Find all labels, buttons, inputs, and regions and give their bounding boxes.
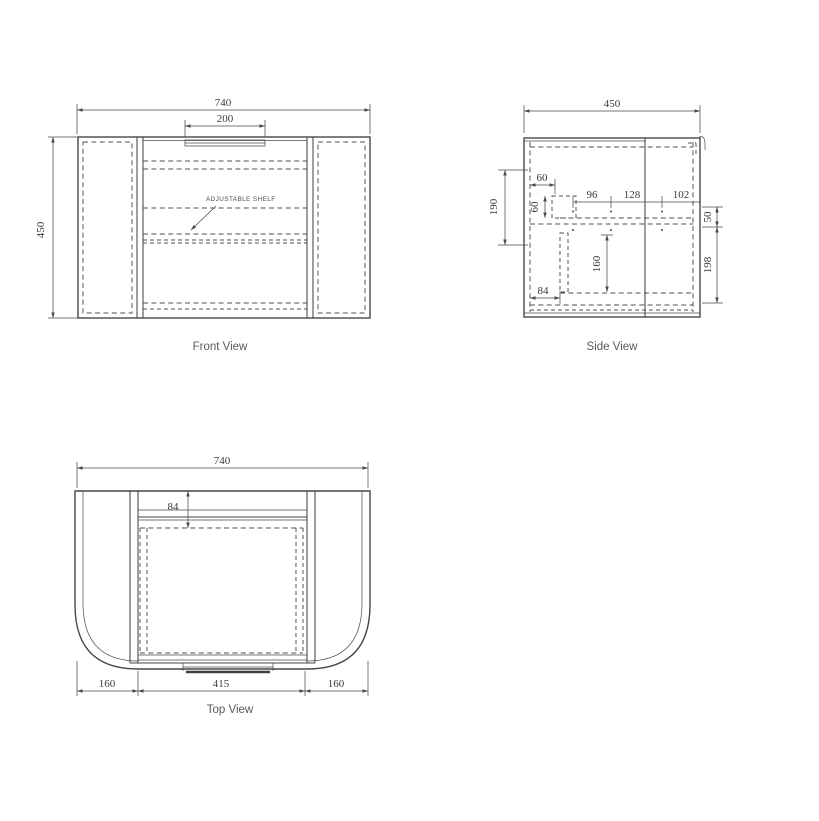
front-height-dimension: 450: [35, 137, 78, 318]
top-right-wing-label: 160: [328, 678, 345, 690]
top-84-label: 84: [168, 501, 180, 513]
top-view-outline: [75, 491, 370, 669]
hinge-spacing-dimensions: 96 128 102: [587, 189, 690, 201]
side-hidden-lines: [530, 142, 696, 312]
side-depth-dimension: 450: [524, 98, 700, 133]
top-handle: [183, 663, 273, 672]
side-84-label: 84: [538, 285, 550, 297]
side-left-dimension: 190: [488, 170, 528, 245]
side-interior-dimension: 160: [591, 235, 613, 292]
side-bottom-inset-dimension: 84: [530, 285, 560, 304]
top-left-wing-label: 160: [99, 678, 116, 690]
side-60b-label: 60: [529, 201, 541, 213]
adjustable-shelf-callout: ADJUSTABLE SHELF: [191, 196, 276, 230]
front-handle-dimension: 200: [185, 113, 265, 137]
side-160-label: 160: [591, 255, 603, 272]
top-opening-label: 415: [213, 678, 230, 690]
front-hidden-lines: [83, 142, 365, 313]
front-view-outline: [78, 137, 370, 318]
top-view-drawing: 740 84 160 415 160 Top View: [40, 445, 390, 735]
side-depth-label: 450: [604, 98, 621, 110]
side-50-label: 50: [702, 211, 714, 223]
front-view-drawing: 740 200 450 ADJUSTABLE SHELF Front View: [30, 80, 390, 370]
side-128-label: 128: [624, 189, 641, 201]
top-bottom-dimensions: 160 415 160: [77, 661, 368, 696]
side-view-drawing: 450 190 60 60 96 128 102 5: [480, 80, 810, 370]
side-190-label: 190: [488, 198, 500, 215]
front-handle-label: 200: [217, 113, 234, 125]
top-width-dimension: 740: [77, 455, 368, 488]
hinge-inset-dimension: 60: [530, 172, 555, 194]
side-96-label: 96: [587, 189, 599, 201]
side-60a-label: 60: [537, 172, 549, 184]
top-width-label: 740: [214, 455, 231, 467]
front-width-label: 740: [215, 97, 232, 109]
top-rail-dimension: 84: [168, 491, 189, 528]
top-hidden-lines: [140, 528, 303, 653]
hinge-plate-dimension: 60: [529, 196, 545, 218]
side-102-label: 102: [673, 189, 690, 201]
front-handle-recess: [185, 140, 265, 146]
hinge-markers: [572, 196, 700, 231]
side-right-dimensions: 50 198: [702, 207, 723, 303]
front-view-title: Front View: [193, 341, 248, 353]
side-198-label: 198: [702, 256, 714, 273]
adjustable-shelf-note: ADJUSTABLE SHELF: [206, 196, 276, 203]
front-height-label: 450: [35, 221, 47, 238]
drawing-canvas: 740 200 450 ADJUSTABLE SHELF Front View: [0, 0, 819, 821]
top-view-title: Top View: [207, 704, 254, 716]
side-view-title: Side View: [587, 341, 639, 353]
side-view-outline: [524, 137, 705, 317]
